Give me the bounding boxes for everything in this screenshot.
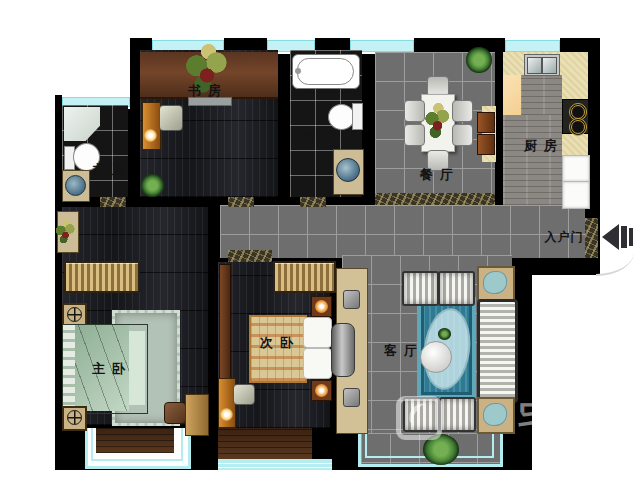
- study-label: 书房: [168, 82, 248, 100]
- main-sofa: [477, 299, 518, 403]
- bathtub-faucet: [295, 68, 301, 74]
- dining-plant: [466, 47, 492, 73]
- master-bay-window-frame: [85, 428, 191, 469]
- stove-burner-2: [569, 118, 587, 136]
- dining-label: 餐厅: [408, 166, 472, 184]
- kitchen-appliance-1: [562, 155, 590, 182]
- sbed-pillow-2: [303, 348, 332, 379]
- dining-threshold-band: [375, 193, 495, 205]
- nightstand-lamp-dial: [67, 307, 82, 322]
- second-bedroom-threshold: [228, 250, 272, 262]
- tv-speaker-bottom: [343, 388, 360, 407]
- watermark: 宅配: [396, 396, 604, 440]
- dining-chair-right-1: [452, 100, 473, 122]
- nightstand-lamp-dial: [67, 410, 82, 425]
- second-bay-floor: [218, 428, 312, 460]
- watermark-logo-icon: [396, 396, 442, 440]
- study-threshold: [228, 197, 254, 207]
- nightstand-lamp-knob: [315, 384, 328, 397]
- study-plant: [141, 174, 164, 197]
- kitchen-sink-bowl-2: [542, 57, 557, 74]
- kitchen-appliance-2: [562, 181, 590, 209]
- study-lamp: [144, 129, 157, 142]
- master-bath-label: 主卫: [84, 161, 140, 179]
- floor-plan: 书房 主卫 次卫 餐厅 厨房 入户门 主卧 次卧 客厅 宅配: [0, 0, 640, 493]
- entry-arrow-bar-1: [621, 226, 627, 248]
- bathtub: [292, 54, 360, 89]
- entry-arrow-icon: [602, 224, 619, 250]
- kitchen-peach-cabinet: [503, 75, 521, 115]
- sbed-desk-lamp: [220, 408, 233, 421]
- bathtub-inner: [297, 58, 354, 85]
- second-bath-label: 次卫: [292, 128, 352, 146]
- dining-chair-right-2: [452, 124, 473, 146]
- table-plant-deco: [438, 328, 451, 340]
- mbed-chair: [164, 402, 186, 424]
- master-bay-floor: [96, 428, 174, 453]
- sbed-chair: [233, 384, 255, 405]
- mbed-nightstand-2: [62, 406, 87, 431]
- sink-basin-mbath: [65, 175, 86, 196]
- entry-arrow-bar-2: [629, 228, 633, 246]
- armchair-top-left: [402, 271, 439, 306]
- sbed-nightstand-2: [311, 380, 332, 401]
- bar-stool-2: [477, 134, 495, 155]
- corner-table-top: [477, 266, 515, 301]
- entry-door-label: 入户门: [540, 229, 588, 246]
- second-bedroom-label: 次卧: [248, 334, 312, 352]
- study-chair: [159, 105, 183, 131]
- sbed-wardrobe: [273, 261, 336, 293]
- master-bedroom-label: 主卧: [80, 360, 144, 378]
- sink-basin-sbath: [336, 158, 360, 182]
- kitchen-sink-bowl-1: [527, 57, 542, 74]
- nightstand-lamp-knob: [315, 300, 328, 313]
- stove: [562, 99, 589, 134]
- armchair-top-right: [438, 271, 475, 306]
- dining-chair-left-2: [404, 124, 425, 146]
- mbed-headboard: [63, 325, 75, 411]
- second-bay-window: [218, 459, 332, 470]
- corner-table-glass-top: [483, 271, 507, 294]
- watermark-text: 宅配: [518, 399, 604, 437]
- toilet-tank-sbath: [352, 103, 363, 130]
- master-bath-threshold: [100, 197, 126, 207]
- tv-speaker-top: [343, 290, 360, 309]
- dining-chair-left-1: [404, 100, 425, 122]
- mbed-desk: [185, 394, 209, 436]
- sbed-nightstand-1: [311, 296, 332, 317]
- mbed-wardrobe: [64, 261, 140, 293]
- bar-stool-1: [477, 112, 495, 133]
- sbed-door-panel: [219, 264, 231, 380]
- dining-centerpiece: [423, 101, 451, 141]
- kitchen-label: 厨房: [512, 137, 576, 155]
- kitchen-sink: [524, 54, 560, 76]
- second-bath-threshold: [300, 197, 326, 207]
- tv: [331, 323, 355, 377]
- toilet-bowl-sbath: [328, 104, 355, 130]
- kitchen-floor-lower: [503, 115, 562, 205]
- living-label: 客厅: [372, 342, 436, 360]
- wall-entry-stub: [512, 255, 600, 275]
- mbed-console-flowers: [53, 219, 77, 245]
- hallway-floor: [220, 205, 585, 258]
- entry-door-swing-arc: [596, 252, 634, 276]
